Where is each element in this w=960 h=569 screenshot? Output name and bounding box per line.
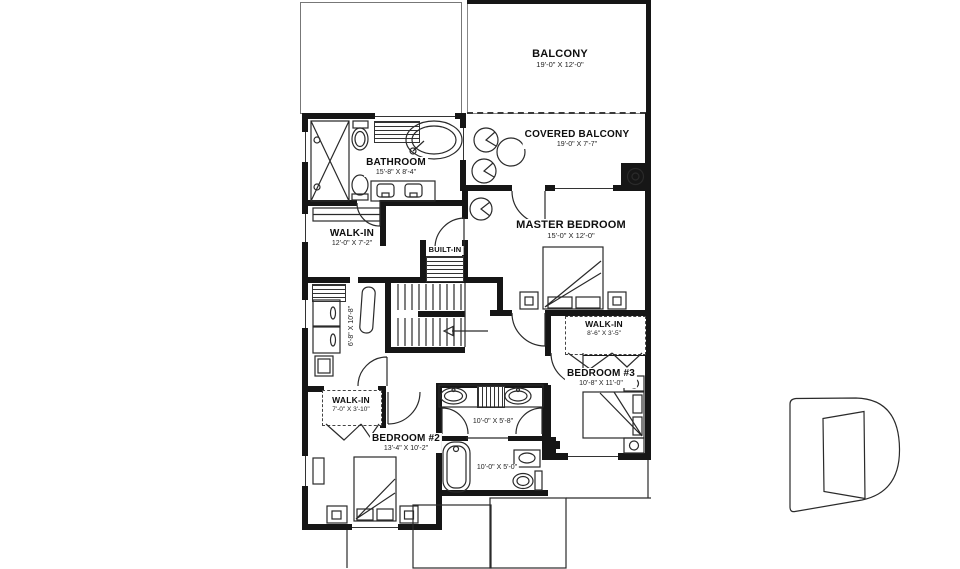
built-in-label: BUILT-IN bbox=[427, 246, 464, 255]
cross-symbol bbox=[544, 441, 560, 449]
roof-box-top-left bbox=[300, 2, 462, 114]
door-opening bbox=[512, 310, 545, 316]
floor-plan: BALCONY19'-0" X 12'-0" COVERED BALCONY19… bbox=[0, 0, 960, 569]
window bbox=[375, 113, 455, 119]
bedroom3-bed bbox=[583, 376, 644, 453]
toilet bbox=[352, 121, 368, 150]
double-vanity bbox=[371, 181, 435, 201]
hall-bathtub bbox=[443, 442, 470, 492]
ironing-board bbox=[359, 287, 375, 334]
wall-segment bbox=[302, 200, 357, 206]
hall-toilet bbox=[513, 471, 542, 490]
wall-segment bbox=[467, 0, 651, 4]
window bbox=[302, 132, 308, 162]
wall-segment bbox=[508, 436, 548, 441]
room-label-bedroom3: BEDROOM #310'-8" X 11'-0" bbox=[565, 368, 637, 388]
laundry-dims-label: 6'-8" X 10'-8" bbox=[348, 304, 356, 348]
roof-outline bbox=[347, 460, 651, 568]
built-in-cabinet bbox=[426, 256, 464, 282]
window bbox=[568, 453, 618, 460]
wall-segment bbox=[646, 0, 651, 116]
balcony-dashed-edge bbox=[467, 112, 646, 114]
door-opening bbox=[357, 200, 380, 206]
window bbox=[302, 456, 308, 486]
balcony-column bbox=[621, 163, 650, 190]
window bbox=[555, 185, 613, 191]
wall-segment bbox=[385, 277, 391, 353]
shower-stall bbox=[311, 121, 349, 201]
wall-segment bbox=[380, 200, 465, 206]
toilet bbox=[352, 175, 368, 200]
door-opening bbox=[512, 185, 545, 191]
wall-segment bbox=[380, 206, 386, 246]
wall-segment bbox=[436, 383, 442, 530]
room-label-bathroom: BATHROOM15'-8" X 8'-4" bbox=[364, 157, 428, 177]
laundry-shelf bbox=[312, 284, 346, 302]
room-label-bedroom2: BEDROOM #213'-4" X 10'-2" bbox=[370, 433, 442, 453]
room-label-covered-balcony: COVERED BALCONY19'-0" X 7'-7" bbox=[523, 129, 632, 149]
master-bed bbox=[520, 247, 626, 309]
wall-segment bbox=[302, 277, 350, 283]
wall-segment bbox=[385, 347, 465, 353]
bedroom2-bed bbox=[313, 457, 418, 523]
linen-shelf bbox=[374, 121, 420, 143]
vanity-cabinet bbox=[477, 386, 505, 408]
window bbox=[460, 128, 466, 160]
window bbox=[302, 214, 308, 242]
room-label-walkin-bedroom2: WALK-IN7'-0" X 3'-10" bbox=[330, 396, 372, 413]
wall-segment bbox=[436, 490, 548, 496]
wall-segment bbox=[545, 316, 551, 353]
room-label-walkin-bedroom3: WALK-IN8'-6" X 3'-5" bbox=[583, 320, 625, 337]
closet-rod bbox=[313, 208, 380, 221]
wall-segment bbox=[418, 311, 465, 317]
window bbox=[302, 300, 308, 328]
window bbox=[352, 524, 398, 530]
room-label-balcony: BALCONY19'-0" X 12'-0" bbox=[530, 48, 590, 69]
bath3-dims-label: 10'-0" X 5'-0" bbox=[475, 464, 519, 472]
room-label-master-bedroom: MASTER BEDROOM15'-0" X 12'-0" bbox=[514, 219, 628, 240]
armchair bbox=[470, 198, 492, 220]
bath2-dims-label: 10'-0" X 5'-8" bbox=[471, 418, 515, 426]
builder-logo-watermark bbox=[790, 398, 900, 512]
washer-dryer-stack bbox=[313, 300, 340, 376]
room-label-walkin-master: WALK-IN12'-0" X 7'-2" bbox=[328, 228, 376, 248]
wall-segment bbox=[462, 191, 468, 219]
wall-segment bbox=[302, 386, 324, 392]
